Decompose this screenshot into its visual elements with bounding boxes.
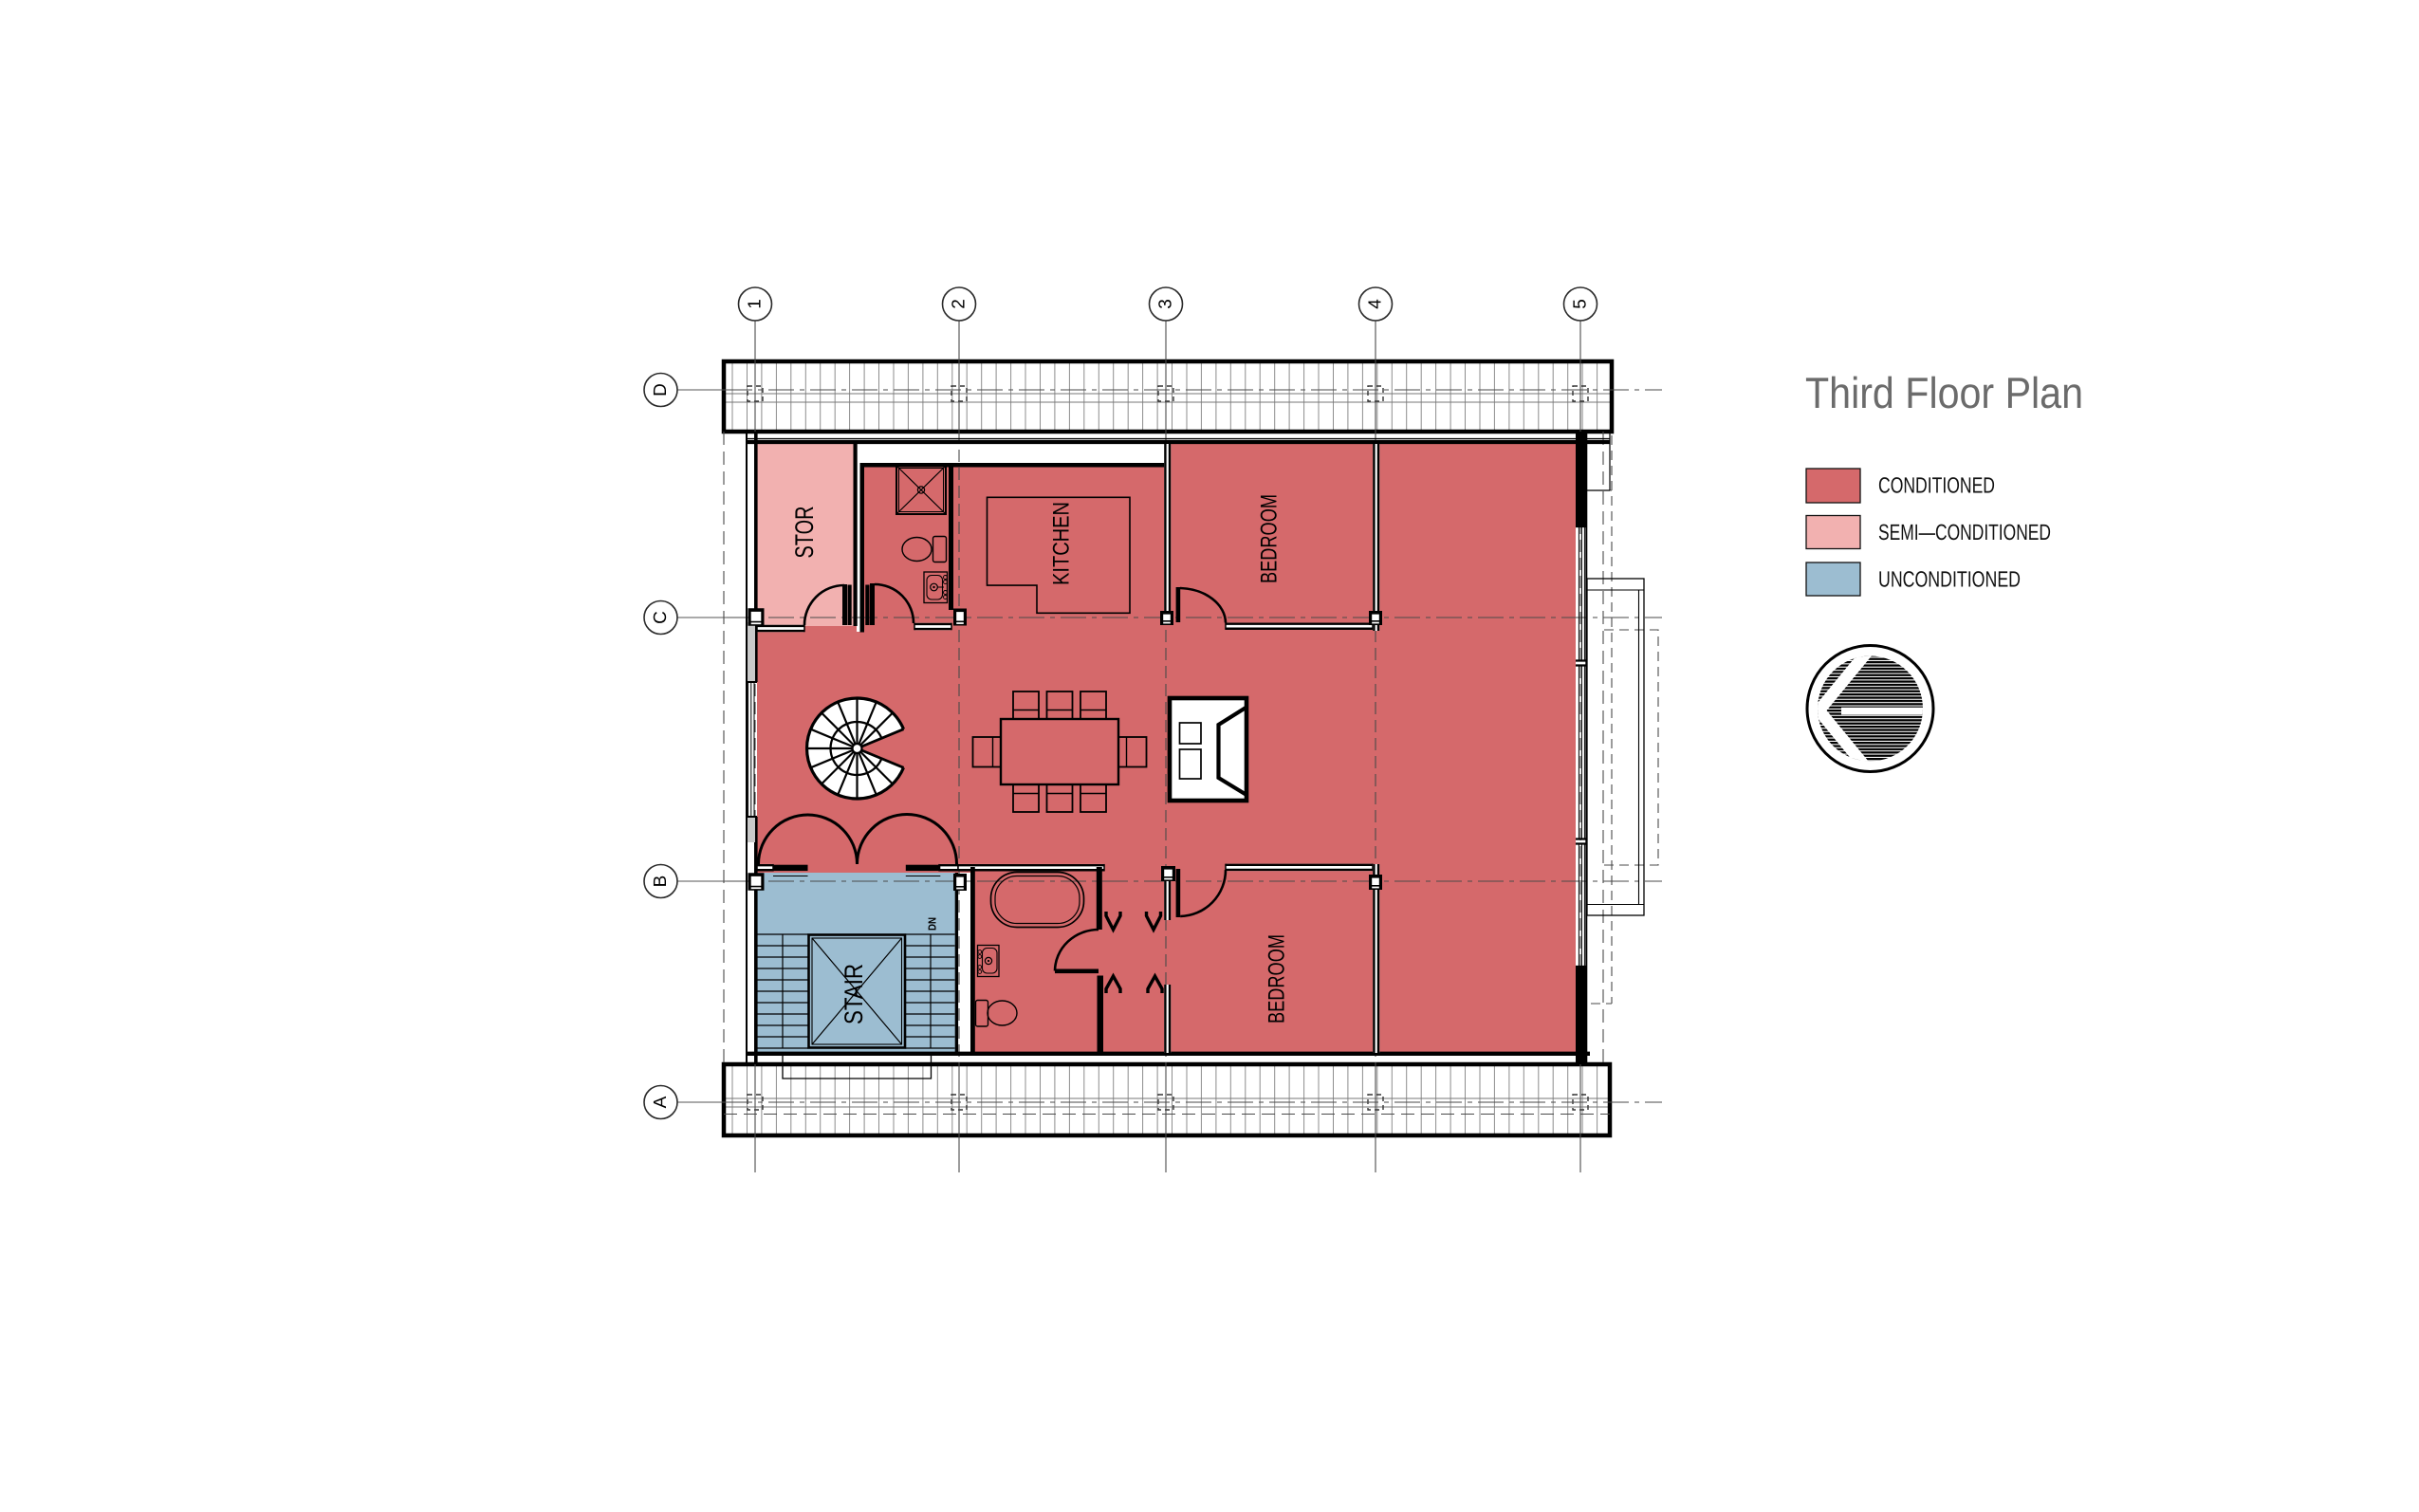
svg-text:DN: DN [928, 917, 939, 931]
svg-text:B: B [651, 876, 671, 888]
svg-text:STAIR: STAIR [840, 964, 868, 1024]
svg-text:A: A [651, 1096, 671, 1108]
svg-text:C: C [651, 611, 671, 624]
svg-text:5: 5 [1571, 299, 1591, 309]
svg-text:CONDITIONED: CONDITIONED [1878, 473, 1995, 498]
svg-text:UNCONDITIONED: UNCONDITIONED [1878, 567, 2021, 592]
svg-text:Third Floor Plan: Third Floor Plan [1805, 368, 2083, 417]
svg-text:STOR: STOR [790, 507, 819, 559]
svg-text:D: D [651, 383, 671, 396]
svg-text:1: 1 [746, 299, 766, 309]
svg-text:BEDROOM: BEDROOM [1256, 494, 1282, 583]
svg-text:BEDROOM: BEDROOM [1264, 934, 1289, 1023]
svg-text:3: 3 [1156, 299, 1176, 309]
svg-text:2: 2 [950, 299, 969, 309]
svg-text:SEMI—CONDITIONED: SEMI—CONDITIONED [1878, 520, 2051, 544]
svg-text:4: 4 [1366, 299, 1386, 309]
svg-text:KITCHEN: KITCHEN [1048, 502, 1074, 585]
